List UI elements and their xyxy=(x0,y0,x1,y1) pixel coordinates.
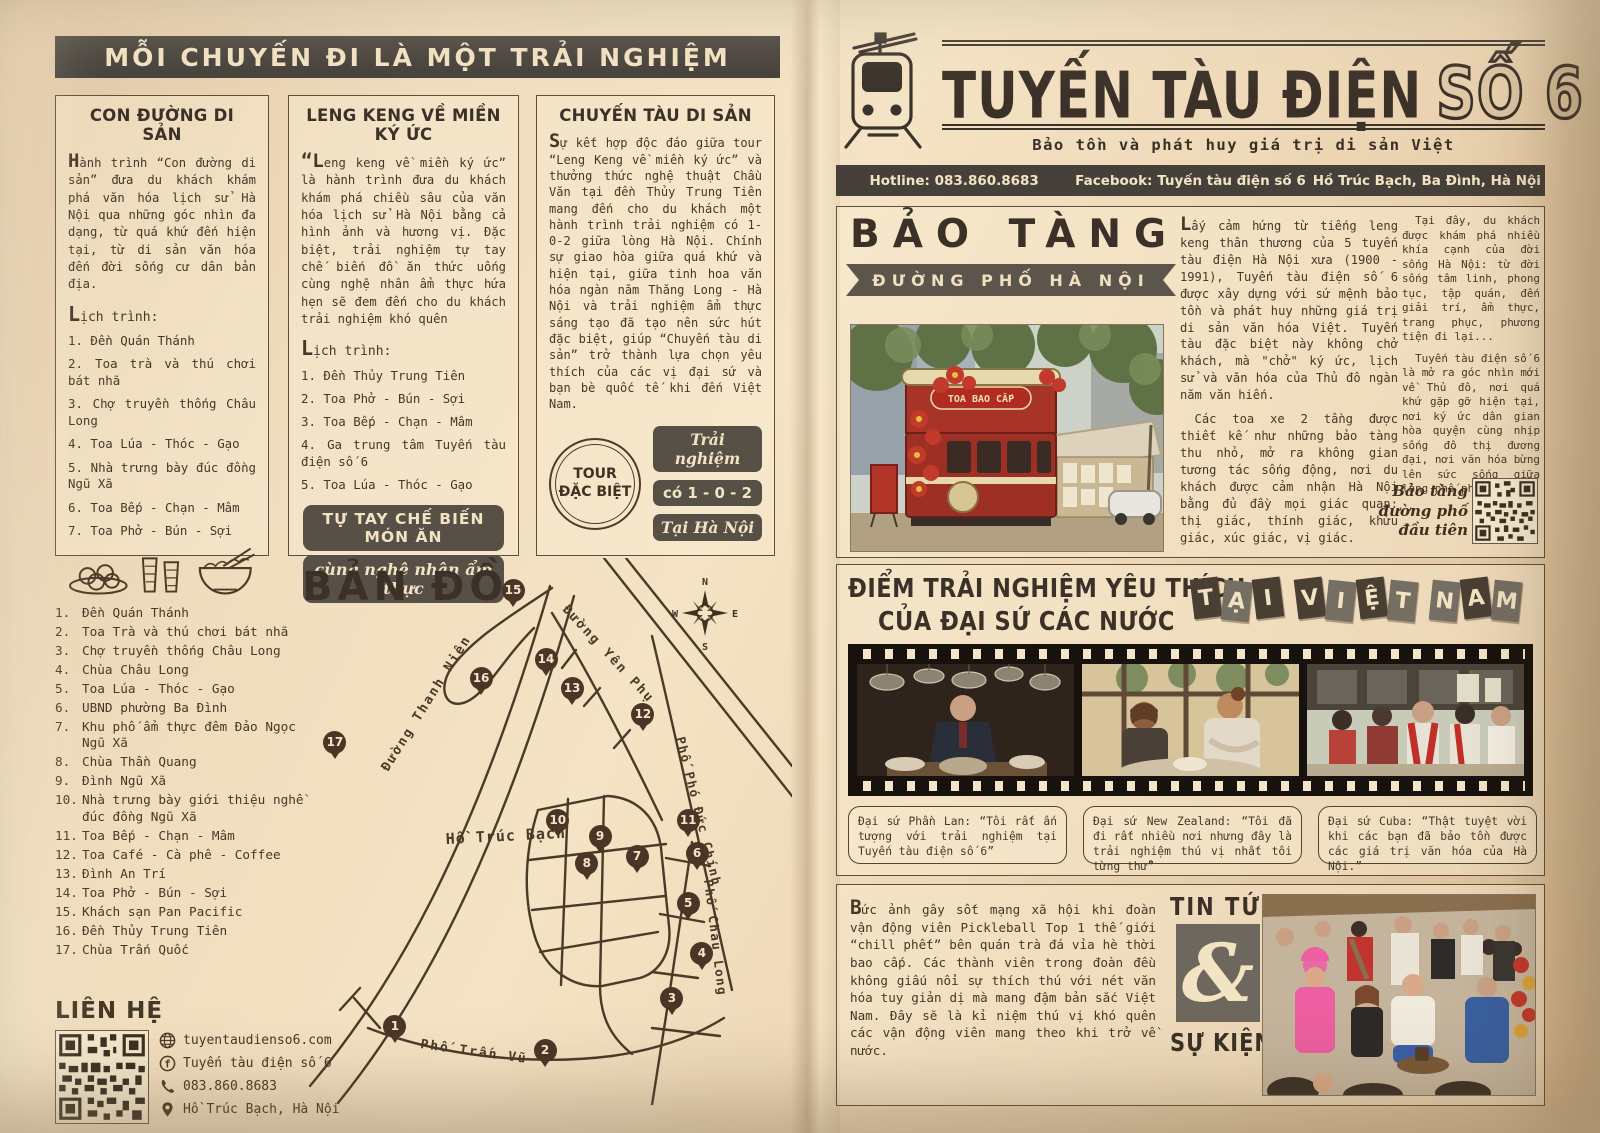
banner-text: MỖI CHUYẾN ĐI LÀ MỘT TRẢI NGHIỆM xyxy=(104,43,731,72)
column-con-duong-di-san: CON ĐƯỜNG DI SẢN Hành trình “Con đường d… xyxy=(55,95,269,556)
museum-paragraph: Tuyến tàu điện số 6 là mở ra góc nhìn mớ… xyxy=(1402,352,1540,497)
museum-ribbon: ĐƯỜNG PHỐ HÀ NỘI xyxy=(846,264,1176,296)
film-strip xyxy=(848,644,1533,796)
legend-row: 16. Đền Thủy Trung Tiên xyxy=(55,923,307,940)
hotline[interactable]: Hotline: 083.860.8683 xyxy=(836,173,1072,189)
letter-tile xyxy=(1285,578,1293,618)
diy-cooking-badge: TỰ TAY CHẾ BIẾN MÓN ĂN xyxy=(303,505,504,551)
schedule-item: 5. Nhà trưng bày đúc đồng Ngũ Xã xyxy=(68,460,256,493)
ampersand-badge: & xyxy=(1176,924,1260,1022)
phone-icon xyxy=(159,1078,176,1095)
experience-badge: Trải nghiệm xyxy=(653,426,762,472)
quote-cuba: Đại sứ Cuba: “Thật tuyệt vời khi các bạn… xyxy=(1318,806,1537,864)
column-intro: Sự kết hợp độc đáo giữa tour “Leng Keng … xyxy=(549,133,762,413)
iced-tea-glasses-icon xyxy=(139,550,184,596)
photo-finland-ambassador xyxy=(857,664,1074,776)
letter-tile xyxy=(1420,578,1428,618)
news-label: TIN TỨC xyxy=(1170,892,1266,921)
contact-qr-code[interactable] xyxy=(55,1030,149,1124)
letter-tile: M xyxy=(1491,580,1523,623)
brochure-page: MỖI CHUYẾN ĐI LÀ MỘT TRẢI NGHIỆM CON ĐƯỜ… xyxy=(0,0,1600,1133)
letter-tile: V xyxy=(1294,576,1327,619)
museum-qr-code[interactable] xyxy=(1472,478,1538,544)
experience-heading-line1: ĐIỂM TRẢI NGHIỆM YÊU THÍCH xyxy=(848,574,1246,604)
letter-tile: I xyxy=(1325,580,1357,623)
map-legend: 1. Đền Quán Thánh 2. Toa Trà và thú chơi… xyxy=(55,602,307,961)
photo-new-zealand-ambassador xyxy=(1082,664,1299,776)
column-title: LENG KENG VỀ MIỀN KÝ ỨC xyxy=(301,106,506,144)
legend-row: 17. Chùa Trấn Quốc xyxy=(55,942,307,959)
one-of-a-kind-badge: có 1 - 0 - 2 xyxy=(653,480,762,506)
schedule-item: 4. Ga trung tâm Tuyến tàu điện số 6 xyxy=(301,437,506,470)
legend-row: 8. Chùa Thần Quang xyxy=(55,754,307,771)
tai-viet-nam-letter-tiles: TẠIVIỆTNAM xyxy=(1192,578,1521,618)
schedule-item: 2. Toa Phở - Bún - Sợi xyxy=(301,391,506,408)
column-leng-keng: LENG KENG VỀ MIỀN KÝ ỨC “Leng keng về mi… xyxy=(288,95,519,556)
schedule-item: 7. Toa Phở - Bún - Sợi xyxy=(68,523,256,540)
legend-row: 1. Đền Quán Thánh xyxy=(55,605,307,622)
column-title: CHUYẾN TÀU DI SẢN xyxy=(549,106,762,125)
hand-drawn-map: Đường Thanh Niên Đường Yên Phụ Phố Phó Đ… xyxy=(300,558,792,1105)
legend-row: 12. Toa Café - Cà phê - Coffee xyxy=(55,847,307,864)
legend-row: 3. Chợ truyền thống Châu Long xyxy=(55,643,307,660)
photo-cuba-ambassador xyxy=(1307,664,1524,776)
schedule-item: 5. Toa Lúa - Thóc - Gạo xyxy=(301,477,506,494)
masthead-tagline: Bảo tồn và phát huy giá trị di sản Việt xyxy=(942,136,1545,154)
left-banner: MỖI CHUYẾN ĐI LÀ MỘT TRẢI NGHIỆM xyxy=(55,36,780,78)
schedule-item: 2. Toa trà và thú chơi bát nhã xyxy=(68,356,256,389)
schedule-item: 4. Toa Lúa - Thóc - Gạo xyxy=(68,436,256,453)
column-intro: “Leng keng về miền ký ức” là hành trình … xyxy=(301,152,506,328)
events-label: SỰ KIỆN xyxy=(1170,1028,1266,1057)
map-marker[interactable]: 12 xyxy=(631,703,654,726)
schedule-list: 1. Đền Thủy Trung Tiên2. Toa Phở - Bún -… xyxy=(301,361,506,500)
map-marker[interactable]: 2 xyxy=(534,1039,557,1062)
map-marker[interactable]: 6 xyxy=(686,842,709,865)
legend-row: 11. Toa Bếp - Chạn - Mâm xyxy=(55,828,307,845)
schedule-item: 1. Đền Quán Thánh xyxy=(68,333,256,350)
map-marker[interactable]: 5 xyxy=(677,892,700,915)
map-markers: 1234567891011121314151617 xyxy=(300,558,792,1105)
location-pin-icon xyxy=(159,1101,176,1118)
masthead-title-suffix: SỐ 6 xyxy=(1436,52,1584,134)
map-marker[interactable]: 17 xyxy=(323,731,346,754)
masthead-rule-bottom xyxy=(942,124,1545,130)
facebook-icon: f xyxy=(159,1055,176,1072)
schedule-item: 1. Đền Thủy Trung Tiên xyxy=(301,368,506,385)
letter-tile: I xyxy=(1252,576,1285,619)
food-icons-row xyxy=(68,546,256,596)
page-fold-shadow xyxy=(790,0,840,1133)
info-bar: Hotline: 083.860.8683 Facebook: Tuyến tà… xyxy=(836,165,1545,196)
map-marker[interactable]: 9 xyxy=(589,825,612,848)
first-street-museum-caption: Bảo tàng đường phố đầu tiên xyxy=(1372,482,1468,541)
museum-column-1: Lấy cảm hứng từ tiếng leng keng thân thư… xyxy=(1180,216,1398,554)
column-intro: Hành trình “Con đường di sản” đưa du khá… xyxy=(68,152,256,294)
museum-column-2: Tại đây, du khách được khám phá nhiều kh… xyxy=(1402,214,1540,504)
letter-tile: A xyxy=(1460,576,1493,619)
plate-of-cakes-icon xyxy=(68,552,129,596)
map-marker[interactable]: 3 xyxy=(660,987,683,1010)
letter-tile: T xyxy=(1387,580,1419,623)
tram-logo-icon xyxy=(836,26,932,150)
schedule-item: 6. Toa Bếp - Chạn - Mâm xyxy=(68,500,256,517)
letter-tile: Ạ xyxy=(1221,580,1253,623)
legend-row: 10. Nhà trưng bày giới thiệu nghề đúc đồ… xyxy=(55,792,307,825)
schedule-item: 3. Chợ truyền thống Châu Long xyxy=(68,396,256,429)
museum-headline: BẢO TÀNG xyxy=(850,212,1176,257)
pho-bowl-icon xyxy=(194,546,257,596)
letter-tile: Ệ xyxy=(1356,576,1389,619)
legend-row: 7. Khu phố ẩm thực đêm Đảo Ngọc Ngũ Xã xyxy=(55,719,307,752)
legend-row: 15. Khách sạn Pan Pacific xyxy=(55,904,307,921)
special-tour-stamp: TOURĐẶC BIỆT xyxy=(549,438,641,530)
tram-street-photo: TOA BAO CẤP xyxy=(850,324,1164,552)
tram-sign-text: TOA BAO CẤP xyxy=(948,392,1014,405)
legend-row: 5. Toa Lúa - Thóc - Gạo xyxy=(55,681,307,698)
map-marker[interactable]: 13 xyxy=(561,677,584,700)
map-marker[interactable]: 16 xyxy=(470,667,493,690)
column-chuyen-tau-di-san: CHUYẾN TÀU DI SẢN Sự kết hợp độc đáo giữ… xyxy=(536,95,775,556)
masthead-title: TUYẾN TÀU ĐIỆNSỐ 6 xyxy=(942,52,1545,134)
map-marker[interactable]: 11 xyxy=(677,809,700,832)
address: Hồ Trúc Bạch, Ba Đình, Hà Nội xyxy=(1309,173,1545,189)
map-marker[interactable]: 14 xyxy=(535,648,558,671)
schedule-list: 1. Đền Quán Thánh2. Toa trà và thú chơi … xyxy=(68,327,256,546)
legend-row: 14. Toa Phở - Bún - Sợi xyxy=(55,885,307,902)
schedule-label: Lịch trình: xyxy=(301,338,506,359)
pickleball-crowd-photo xyxy=(1262,894,1536,1096)
letter-tile: T xyxy=(1190,576,1223,619)
legend-row: 2. Toa Trà và thú chơi bát nhã xyxy=(55,624,307,641)
letter-tile: N xyxy=(1429,580,1461,623)
legend-row: 13. Đình An Trí xyxy=(55,866,307,883)
legend-row: 6. UBND phường Ba Đình xyxy=(55,700,307,717)
map-marker[interactable]: 1 xyxy=(383,1015,406,1038)
svg-text:f: f xyxy=(164,1058,170,1070)
legend-row: 4. Chùa Châu Long xyxy=(55,662,307,679)
in-hanoi-badge: Tại Hà Nội xyxy=(653,514,762,541)
map-marker[interactable]: 7 xyxy=(626,845,649,868)
film-sprockets-bottom xyxy=(856,781,1525,791)
news-events-logo: TIN TỨC & SỰ KIỆN xyxy=(1170,892,1266,1052)
schedule-item: 3. Toa Bếp - Chạn - Mâm xyxy=(301,414,506,431)
quote-new-zealand: Đại sứ New Zealand: “Tôi đã đi rất nhiều… xyxy=(1083,806,1302,864)
news-body: Bức ảnh gây sốt mạng xã hội khi đoàn vận… xyxy=(850,898,1156,1060)
facebook-handle[interactable]: Facebook: Tuyến tàu điện số 6 xyxy=(1072,173,1308,189)
schedule-label: Lịch trình: xyxy=(68,304,256,325)
museum-paragraph: Tại đây, du khách được khám phá nhiều kh… xyxy=(1402,214,1540,345)
museum-paragraph: Các toa xe 2 tầng được thiết kế như nhữn… xyxy=(1180,411,1398,546)
masthead-rule-top xyxy=(942,40,1545,46)
quote-finland: Đại sứ Phần Lan: “Tôi rất ấn tượng với t… xyxy=(848,806,1067,864)
map-marker[interactable]: 10 xyxy=(546,809,569,832)
globe-icon xyxy=(159,1032,176,1049)
experience-heading-line2: CỦA ĐẠI SỨ CÁC NƯỚC xyxy=(878,607,1175,637)
column-title: CON ĐƯỜNG DI SẢN xyxy=(68,106,256,144)
map-marker[interactable]: 4 xyxy=(690,942,713,965)
film-sprockets-top xyxy=(856,649,1525,659)
map-marker[interactable]: 15 xyxy=(502,579,525,602)
museum-paragraph: Lấy cảm hứng từ tiếng leng keng thân thư… xyxy=(1180,216,1398,404)
legend-row: 9. Đình Ngũ Xã xyxy=(55,773,307,790)
